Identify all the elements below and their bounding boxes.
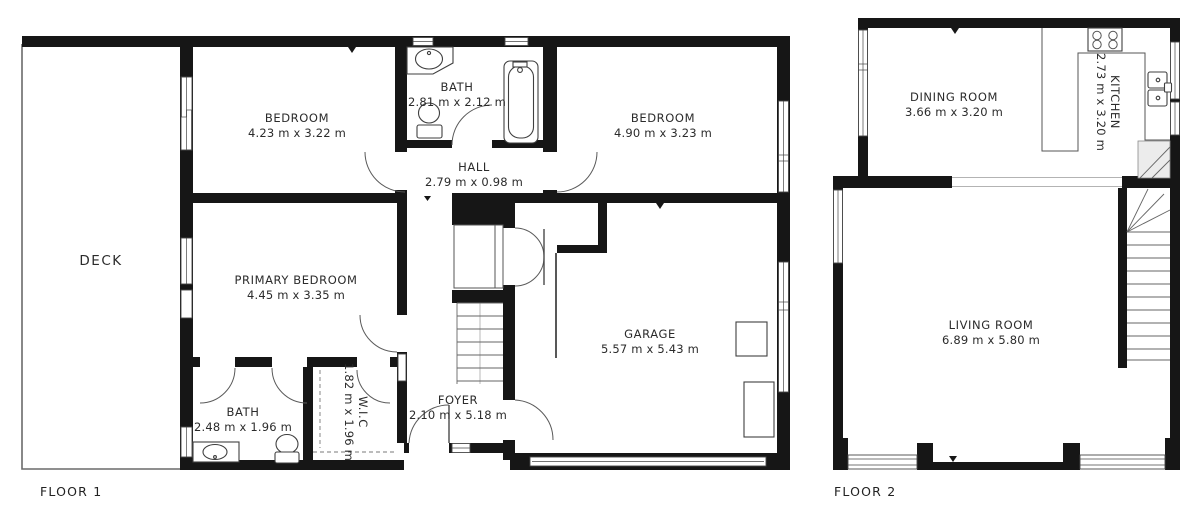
- window: [398, 354, 406, 381]
- room-label-foyer: FOYER: [438, 393, 478, 407]
- room-label-dining: DINING ROOM: [910, 90, 998, 104]
- door-arc: [452, 105, 492, 145]
- staircase: [1127, 189, 1170, 360]
- room-label-garage: GARAGE: [624, 327, 676, 341]
- dimension-tick: [424, 196, 431, 201]
- sliding-door: [181, 77, 192, 150]
- bathroom-sink: [407, 47, 453, 74]
- room-dims-bath1: 2.81 m x 2.12 m: [408, 95, 506, 109]
- floor2-windows: [834, 30, 1180, 469]
- room-label-bath2: BATH: [227, 405, 260, 419]
- dimension-tick: [951, 28, 959, 34]
- floor2-caption: FLOOR 2: [834, 484, 896, 499]
- room-label-bath1: BATH: [441, 80, 474, 94]
- room-dims-living: 6.89 m x 5.80 m: [942, 333, 1040, 347]
- room-dims-kitchen: 2.73 m x 3.20 m: [1094, 53, 1108, 151]
- room-label-bedroom2: BEDROOM: [631, 111, 695, 125]
- dimension-tick: [656, 203, 664, 209]
- bathroom-sink: [193, 442, 239, 462]
- room-label-primary: PRIMARY BEDROOM: [234, 273, 357, 287]
- room-dims-dining: 3.66 m x 3.20 m: [905, 105, 1003, 119]
- stair-landing: [1138, 141, 1170, 178]
- floor1-fixtures: [193, 47, 774, 463]
- closet: [454, 225, 503, 288]
- door-arc: [365, 152, 405, 192]
- garage-door: [530, 457, 766, 466]
- floor2-plan: DINING ROOM 3.66 m x 3.20 m KITCHEN 2.73…: [833, 18, 1180, 470]
- floor1-caption: FLOOR 1: [40, 484, 102, 499]
- bathtub: [504, 61, 538, 143]
- staircase: [457, 303, 503, 384]
- closet-double-doors: [515, 228, 544, 286]
- floorplan-svg: DECK BEDROOM 4.23 m x 3.22 m BATH 2.81 m…: [0, 0, 1200, 522]
- window: [181, 290, 192, 318]
- kitchen-sink: [1148, 72, 1172, 106]
- room-dims-wic: 1.82 m x 1.96 m: [342, 363, 356, 461]
- room-label-bedroom1: BEDROOM: [265, 111, 329, 125]
- floor2-walls: [833, 18, 1180, 470]
- floor2-labels: DINING ROOM 3.66 m x 3.20 m KITCHEN 2.73…: [905, 53, 1122, 347]
- room-dims-bath2: 2.48 m x 1.96 m: [194, 420, 292, 434]
- room-dims-primary: 4.45 m x 3.35 m: [247, 288, 345, 302]
- room-label-hall: HALL: [458, 160, 490, 174]
- room-label-kitchen: KITCHEN: [1108, 75, 1122, 129]
- room-dims-foyer: 2.10 m x 5.18 m: [409, 408, 507, 422]
- room-label-deck: DECK: [79, 253, 122, 269]
- door-arc: [557, 152, 597, 192]
- room-dims-bedroom1: 4.23 m x 3.22 m: [248, 126, 346, 140]
- floor1-plan: DECK BEDROOM 4.23 m x 3.22 m BATH 2.81 m…: [22, 36, 790, 470]
- door-arc: [360, 315, 397, 352]
- garage-storage: [736, 322, 767, 356]
- cased-opening: [952, 178, 1122, 187]
- dimension-tick: [949, 456, 957, 462]
- garage-storage: [744, 382, 774, 437]
- window: [848, 455, 917, 469]
- toilet: [275, 435, 299, 464]
- window: [1080, 455, 1165, 469]
- door-arc: [272, 368, 307, 403]
- dimension-tick: [348, 47, 356, 53]
- door-arc: [515, 400, 553, 440]
- stove: [1088, 28, 1122, 51]
- door-arc: [200, 368, 235, 403]
- room-dims-garage: 5.57 m x 5.43 m: [601, 342, 699, 356]
- room-label-living: LIVING ROOM: [949, 318, 1034, 332]
- room-label-wic: W.I.C: [356, 396, 370, 428]
- room-dims-bedroom2: 4.90 m x 3.23 m: [614, 126, 712, 140]
- floor1-walls: [22, 36, 790, 470]
- floorplan-image: DECK BEDROOM 4.23 m x 3.22 m BATH 2.81 m…: [0, 0, 1200, 522]
- room-dims-hall: 2.79 m x 0.98 m: [425, 175, 523, 189]
